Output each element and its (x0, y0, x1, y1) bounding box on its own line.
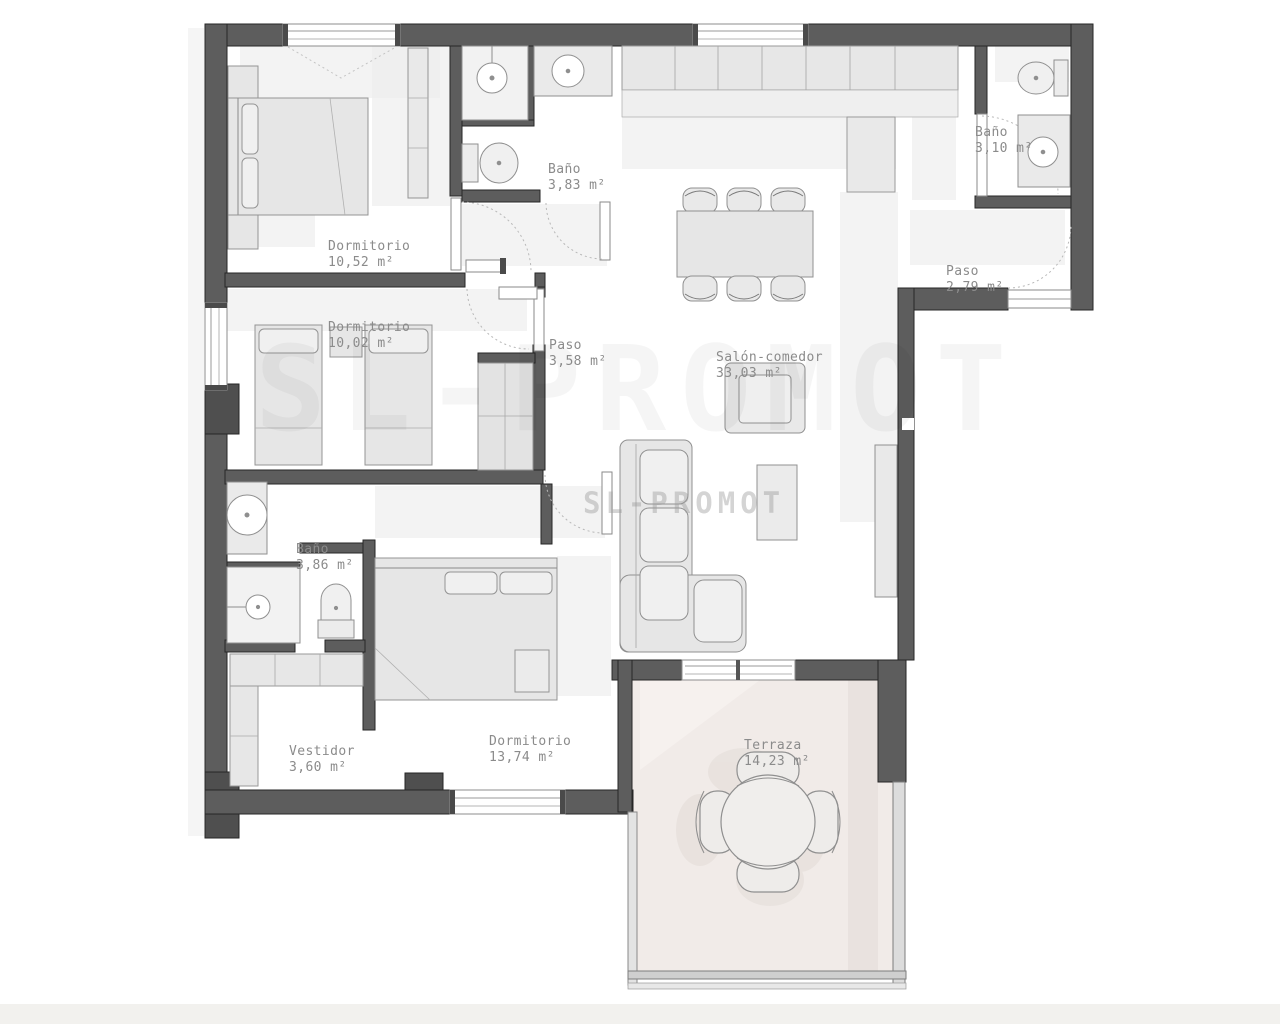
nightstand (228, 66, 258, 98)
kitchen-counter-right (847, 117, 895, 192)
dining-table (677, 211, 813, 277)
coffee-table (757, 465, 797, 540)
tv-sideboard (875, 445, 897, 597)
page-bottom-band (0, 1004, 1280, 1024)
pillow (242, 104, 258, 154)
closet-shelf-top (230, 654, 363, 686)
wardrobe (478, 363, 533, 470)
kitchen-counter-front (622, 90, 958, 117)
window-dormitorio1-top (283, 24, 400, 46)
room-label-paso-358: Paso3,58 m² (549, 306, 607, 402)
toilet-cistern (1054, 60, 1068, 96)
room-label-dormitorio-1374: Dormitorio13,74 m² (489, 702, 571, 798)
room-label-terraza-1423: Terraza14,23 m² (744, 706, 810, 802)
nightstand (228, 215, 258, 249)
pillow (500, 572, 552, 594)
room-label-paso-279: Paso2,79 m² (946, 232, 1004, 328)
bed-bench (515, 650, 549, 692)
toilet-cistern (318, 620, 354, 638)
wardrobe (408, 48, 428, 198)
floorplan-svg (0, 0, 1280, 1024)
toilet-cistern (462, 144, 478, 182)
sofa (620, 440, 746, 652)
room-label-bano-383: Baño3,83 m² (548, 130, 606, 226)
dining-chairs-bottom (683, 276, 805, 301)
room-label-bano-386: Baño3,86 m² (296, 510, 354, 606)
room-label-dormitorio-1002: Dormitorio10,02 m² (328, 288, 410, 384)
pillow (259, 329, 318, 353)
room-label-vestidor-360: Vestidor3,60 m² (289, 712, 355, 808)
kitchen-counter (622, 46, 958, 90)
pillow (242, 158, 258, 208)
pillow (445, 572, 497, 594)
dining-chairs-top (683, 188, 805, 213)
room-label-bano-310: Baño3,10 m² (975, 93, 1033, 189)
window-dormitorio2-left (205, 303, 227, 390)
floorplan-page: SL-PROMOT SL-PROMOT Dormitorio10,52 m² B… (0, 0, 1280, 1024)
room-label-salon-comedor: Salón-comedor33,03 m² (716, 318, 823, 414)
dormitorio3-furniture (375, 558, 557, 700)
terraza-sliding-door (682, 660, 795, 680)
